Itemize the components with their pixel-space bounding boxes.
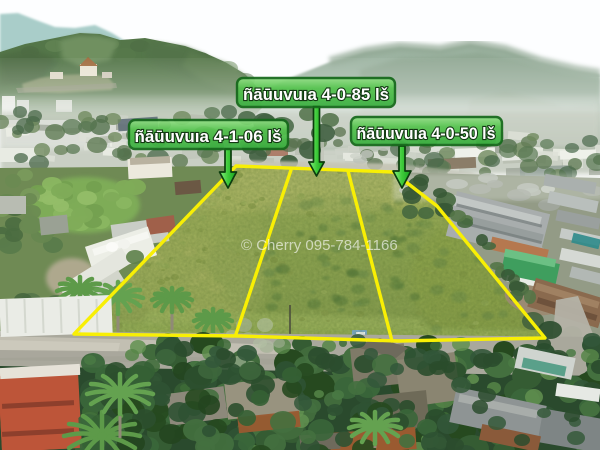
svg-text:ñāūuvuıa 4-1-06 lš: ñāūuvuıa 4-1-06 lš [135,127,282,146]
svg-text:ñāūuvuıa 4-0-85 lš: ñāūuvuıa 4-0-85 lš [243,85,389,104]
svg-text:© Cherry 095-784-1166: © Cherry 095-784-1166 [241,237,398,254]
svg-text:ñāūuvuıa 4-0-50 lš: ñāūuvuıa 4-0-50 lš [357,124,496,143]
